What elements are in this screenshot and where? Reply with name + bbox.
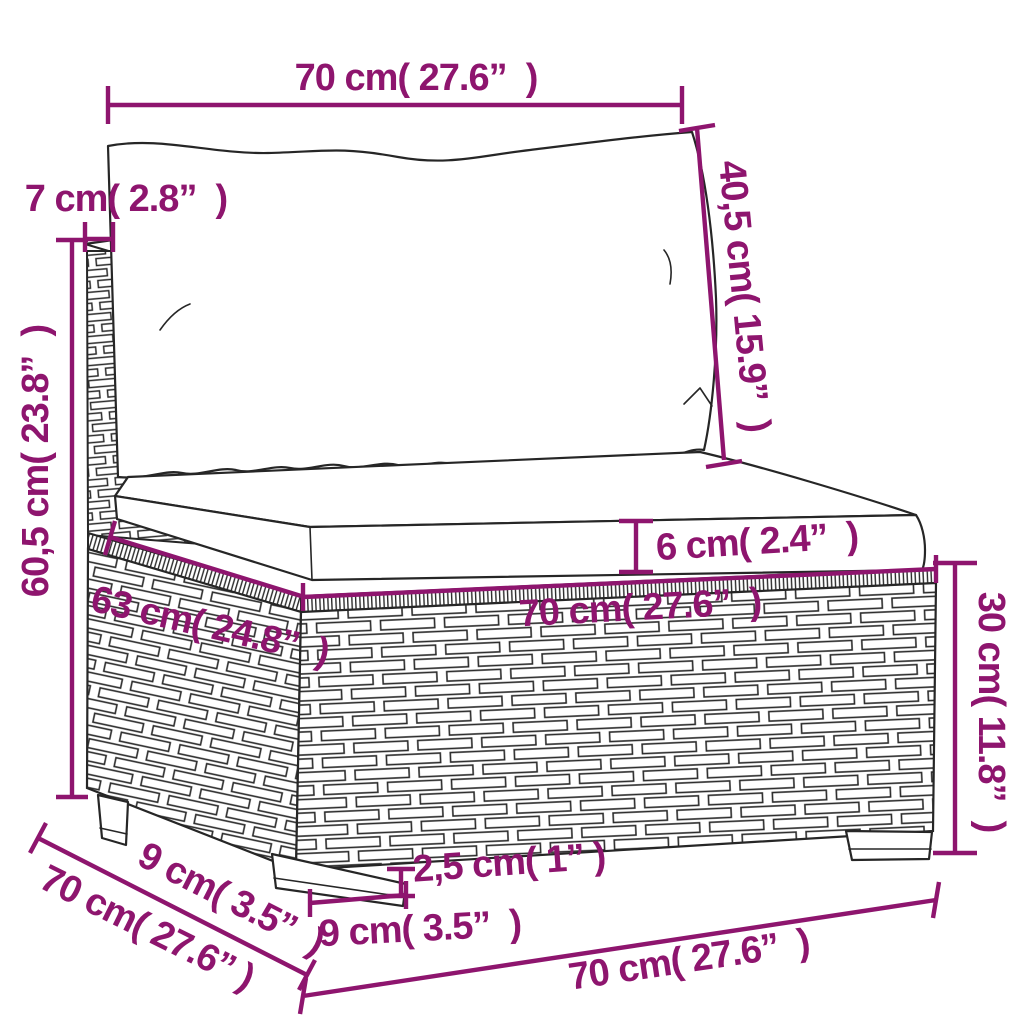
- dim-label-total-height: 60,5 cm( 23.8” ): [17, 325, 55, 597]
- base: [87, 533, 936, 870]
- front-right-leg: [846, 831, 932, 860]
- back-left-leg: [98, 795, 128, 845]
- dim-label-frame-thickness: 7 cm( 2.8” ): [25, 180, 227, 218]
- dim-label-back-width: 70 cm( 27.6” ): [295, 59, 538, 97]
- dim-label-leg-width: 9 cm( 3.5” ): [318, 905, 522, 954]
- dim-line-total-height: [56, 240, 88, 797]
- dim-label-base-height: 30 cm( 11.8” ): [972, 592, 1010, 833]
- dimension-diagram: 70 cm( 27.6” ) 40,5 cm( 15.9” ) 7 cm( 2.…: [0, 0, 1024, 1024]
- seat-cushion: [115, 452, 925, 580]
